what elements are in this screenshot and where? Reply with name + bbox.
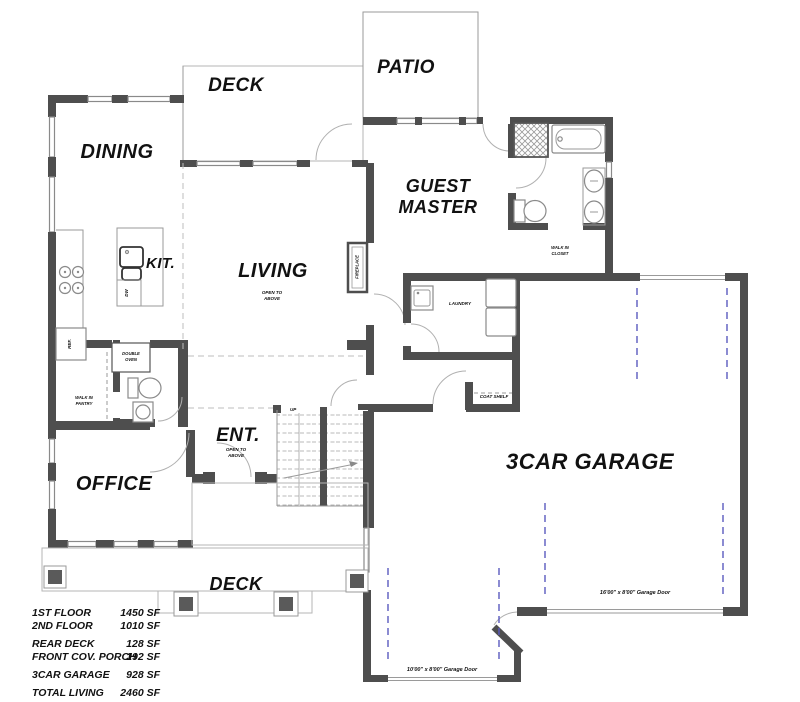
bath-inner-door-arc (516, 158, 546, 188)
bathtub (552, 125, 605, 153)
guest-door-arc (374, 294, 405, 325)
powder-room (128, 378, 161, 422)
entry-open-above-2: ABOVE (227, 453, 245, 458)
entry-label: ENT. (216, 425, 260, 446)
double-oven-label-2: OVEN (125, 357, 138, 362)
living-open-above-2: ABOVE (263, 296, 281, 301)
area-row-label: TOTAL LIVING (32, 687, 104, 699)
living-open-above-1: OPEN TO (262, 290, 283, 295)
laundry-door-arc (411, 324, 439, 352)
shower (514, 123, 548, 157)
fireplace-label: FIREPLACE (355, 255, 360, 279)
office-label: OFFICE (76, 473, 152, 495)
guest-master-label-2: MASTER (399, 197, 478, 217)
powder-toilet-tank (128, 378, 138, 398)
patio-label: PATIO (377, 57, 435, 78)
pantry-label-1: WALK IN (75, 395, 94, 400)
garage-side-door-arc (494, 612, 517, 625)
kitchen-label: KIT. (146, 255, 175, 272)
fireplace: FIREPLACE (348, 243, 367, 292)
porch-post (44, 566, 66, 588)
area-row-label: REAR DECK (32, 638, 96, 650)
bath-toilet (514, 200, 546, 222)
vanity (583, 168, 605, 225)
refrigerator: REF. (56, 328, 86, 360)
double-oven: DOUBLE OVEN (112, 343, 150, 372)
dining-label: DINING (81, 141, 154, 163)
laundry-sink (411, 286, 433, 310)
floor-plan-svg: FIREPLACE (0, 0, 800, 702)
ref-label: REF. (67, 339, 72, 349)
cooktop (60, 267, 84, 294)
walk-in-closet: WALK IN CLOSET (551, 245, 570, 256)
area-row-label: FRONT COV. PORCH (32, 651, 137, 663)
pantry-label-2: PANTRY (76, 401, 94, 406)
garage-door-10-label: 10'00" x 8'00" Garage Door (407, 667, 478, 673)
area-row-value: 192 SF (126, 651, 160, 663)
area-row-label: 1ST FLOOR (32, 607, 91, 619)
office-door-arc (150, 433, 189, 472)
living-label: LIVING (238, 260, 308, 282)
entry-open-above-1: OPEN TO (226, 447, 247, 452)
closet-label-1: WALK IN (551, 245, 570, 250)
dryer (486, 308, 516, 336)
area-row-value: 928 SF (126, 669, 160, 681)
garage-entry-door-arc (433, 371, 466, 404)
porch-post (346, 570, 368, 592)
porch-post (174, 592, 198, 616)
kitchen-sink (120, 247, 143, 267)
area-row-label: 3CAR GARAGE (32, 669, 111, 681)
guest-master-label-1: GUEST (406, 176, 472, 196)
guest-bath (514, 123, 605, 225)
stairs: UP (273, 405, 368, 506)
hall-door-arc (331, 380, 357, 406)
washer (486, 279, 516, 307)
area-row-value: 1450 SF (120, 607, 160, 619)
garage-door-16-label: 16'00" x 8'00" Garage Door (600, 590, 671, 596)
deck-front-label: DECK (209, 574, 264, 594)
garage-label: 3CAR GARAGE (506, 449, 675, 474)
angled-wall (494, 627, 521, 653)
area-row-value: 1010 SF (120, 620, 160, 632)
deck-rear-label: DECK (208, 75, 265, 96)
area-row-value: 2460 SF (119, 687, 160, 699)
garage (363, 273, 748, 682)
laundry-label: LAUNDRY (449, 301, 472, 306)
up-label: UP (290, 407, 297, 412)
area-table: 1ST FLOOR 1450 SF 2ND FLOOR 1010 SF REAR… (31, 607, 161, 699)
area-row-value: 128 SF (126, 638, 160, 650)
porch-post (274, 592, 298, 616)
powder-toilet-bowl (139, 378, 161, 398)
dw-label: DW (124, 289, 129, 297)
floor-plan: FIREPLACE (0, 0, 800, 702)
deck-door-arc (316, 124, 352, 160)
kitchen: REF. DW DOUBLE OVEN (56, 228, 163, 372)
bath-door-arc (483, 124, 510, 151)
ceiling-break-lines (183, 163, 363, 408)
closet-label-2: CLOSET (552, 251, 569, 256)
double-oven-label-1: DOUBLE (122, 351, 140, 356)
laundry-room (411, 279, 516, 336)
coat-shelf-label: COAT SHELF (480, 394, 509, 399)
area-row-label: 2ND FLOOR (31, 620, 93, 632)
pantry: WALK IN PANTRY (75, 352, 107, 420)
